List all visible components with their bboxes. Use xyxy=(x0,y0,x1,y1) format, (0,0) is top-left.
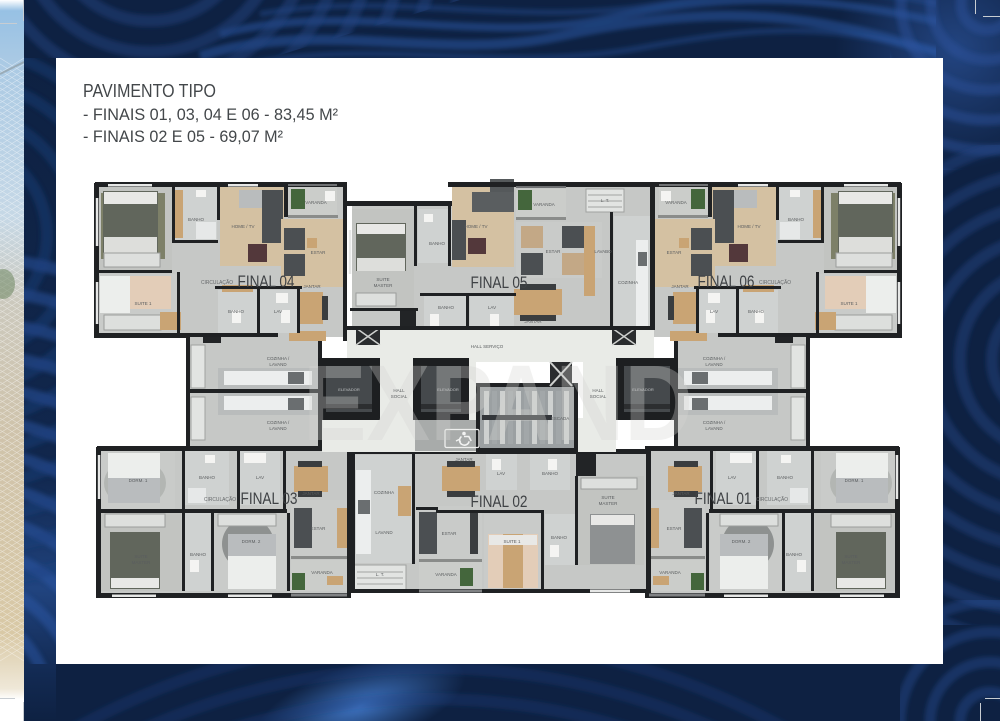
svg-text:BANHO: BANHO xyxy=(438,305,455,310)
svg-text:LAVABO: LAVABO xyxy=(594,249,612,254)
svg-text:ESTAR: ESTAR xyxy=(311,250,326,255)
svg-text:L. T.: L. T. xyxy=(601,198,609,203)
svg-text:BANHO: BANHO xyxy=(429,241,446,246)
svg-text:LAVAND: LAVAND xyxy=(705,362,723,367)
svg-text:JANTAR: JANTAR xyxy=(455,457,473,462)
svg-text:VARANDA: VARANDA xyxy=(533,202,554,207)
svg-text:VARANDA: VARANDA xyxy=(305,200,326,205)
svg-text:BANHO: BANHO xyxy=(551,535,568,540)
svg-text:JANTAR: JANTAR xyxy=(303,284,321,289)
svg-text:BANHO: BANHO xyxy=(188,217,205,222)
svg-text:VARANDA: VARANDA xyxy=(435,572,456,577)
svg-text:LAVAND: LAVAND xyxy=(375,530,393,535)
svg-text:BANHO: BANHO xyxy=(777,475,794,480)
svg-text:EXPAND: EXPAND xyxy=(303,342,693,463)
svg-text:VARANDA: VARANDA xyxy=(665,200,686,205)
svg-text:CIRCULAÇÃO: CIRCULAÇÃO xyxy=(759,279,791,286)
svg-text:CIRCULAÇÃO: CIRCULAÇÃO xyxy=(201,279,233,286)
svg-text:VARANDA: VARANDA xyxy=(311,570,332,575)
svg-text:DORM. 2: DORM. 2 xyxy=(732,539,751,544)
svg-text:HOME / TV: HOME / TV xyxy=(232,224,255,229)
svg-text:SOCIAL: SOCIAL xyxy=(590,394,607,399)
svg-text:HALL SERVIÇO: HALL SERVIÇO xyxy=(471,344,504,349)
svg-text:BANHO: BANHO xyxy=(748,309,765,314)
svg-text:HALL: HALL xyxy=(393,388,405,393)
svg-text:SUITE 1: SUITE 1 xyxy=(840,301,858,306)
svg-text:COZINHA: COZINHA xyxy=(618,280,638,285)
svg-text:LAV: LAV xyxy=(274,309,282,314)
svg-text:MASTER: MASTER xyxy=(374,283,394,288)
svg-text:LAV: LAV xyxy=(728,475,736,480)
svg-text:COZINHA /: COZINHA / xyxy=(703,356,726,361)
svg-text:BANHO: BANHO xyxy=(199,475,216,480)
svg-text:ESCADA: ESCADA xyxy=(551,416,570,421)
svg-text:HALL: HALL xyxy=(592,388,604,393)
svg-text:FINAL 01: FINAL 01 xyxy=(695,489,752,508)
svg-text:FINAL 06: FINAL 06 xyxy=(698,272,755,291)
svg-text:L. T.: L. T. xyxy=(376,572,384,577)
svg-text:ESTAR: ESTAR xyxy=(546,249,561,254)
svg-text:JANTAR: JANTAR xyxy=(672,491,690,496)
svg-text:COZINHA: COZINHA xyxy=(374,490,394,495)
svg-text:FINAL 05: FINAL 05 xyxy=(471,273,528,292)
svg-text:CIRCULAÇÃO: CIRCULAÇÃO xyxy=(756,496,788,503)
svg-text:FINAL 04: FINAL 04 xyxy=(238,272,295,291)
svg-text:ESTAR: ESTAR xyxy=(667,250,682,255)
svg-text:JANTAR: JANTAR xyxy=(302,491,320,496)
svg-text:ESTAR: ESTAR xyxy=(442,531,457,536)
svg-text:JANTAR: JANTAR xyxy=(671,284,689,289)
svg-text:LAVAND: LAVAND xyxy=(705,426,723,431)
svg-text:MASTER: MASTER xyxy=(132,560,152,565)
svg-text:MASTER: MASTER xyxy=(599,501,619,506)
svg-text:ESTAR: ESTAR xyxy=(311,526,326,531)
svg-text:PAVIMENTO TIPO: PAVIMENTO TIPO xyxy=(83,80,216,101)
svg-text:BANHO: BANHO xyxy=(190,552,207,557)
svg-text:FINAL 02: FINAL 02 xyxy=(471,492,528,511)
svg-text:SUITE: SUITE xyxy=(601,495,614,500)
svg-text:BANHO: BANHO xyxy=(788,217,805,222)
svg-text:DORM. 1: DORM. 1 xyxy=(129,478,148,483)
svg-text:LAV: LAV xyxy=(497,471,505,476)
svg-text:SUITE: SUITE xyxy=(376,277,389,282)
svg-text:SOCIAL: SOCIAL xyxy=(391,394,408,399)
svg-text:- FINAIS 01, 03, 04 E 06 - 83,: - FINAIS 01, 03, 04 E 06 - 83,45 M² xyxy=(83,106,338,124)
svg-text:MASTER: MASTER xyxy=(842,560,862,565)
svg-text:HOME / TV: HOME / TV xyxy=(738,224,761,229)
svg-text:SUITE 1: SUITE 1 xyxy=(503,539,521,544)
svg-text:FINAL 03: FINAL 03 xyxy=(241,489,298,508)
svg-text:CIRCULAÇÃO: CIRCULAÇÃO xyxy=(204,496,236,503)
svg-text:DORM. 1: DORM. 1 xyxy=(845,478,864,483)
svg-text:VARANDA: VARANDA xyxy=(659,570,680,575)
svg-text:HOME / TV: HOME / TV xyxy=(465,224,488,229)
svg-text:LAV: LAV xyxy=(488,305,496,310)
svg-text:BANHO: BANHO xyxy=(228,309,245,314)
svg-text:LAVAND: LAVAND xyxy=(269,426,287,431)
svg-text:SUITE 1: SUITE 1 xyxy=(134,301,152,306)
svg-text:DORM. 2: DORM. 2 xyxy=(242,539,261,544)
svg-text:BANHO: BANHO xyxy=(542,471,559,476)
svg-text:COZINHA /: COZINHA / xyxy=(703,420,726,425)
svg-text:LAVAND: LAVAND xyxy=(269,362,287,367)
svg-text:JANTAR: JANTAR xyxy=(524,319,542,324)
svg-text:COZINHA /: COZINHA / xyxy=(267,420,290,425)
svg-text:SUITE: SUITE xyxy=(134,554,147,559)
svg-text:- FINAIS 02 E 05 - 69,07 M²: - FINAIS 02 E 05 - 69,07 M² xyxy=(83,128,283,146)
svg-text:COZINHA /: COZINHA / xyxy=(267,356,290,361)
svg-text:SUITE: SUITE xyxy=(844,554,857,559)
svg-text:LAV: LAV xyxy=(256,475,264,480)
svg-text:BANHO: BANHO xyxy=(786,552,803,557)
svg-text:ESTAR: ESTAR xyxy=(667,526,682,531)
svg-text:LAV: LAV xyxy=(710,309,718,314)
